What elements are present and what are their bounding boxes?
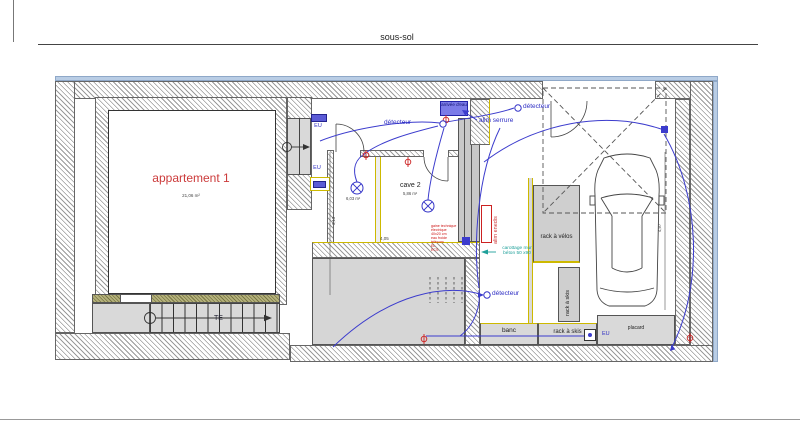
car [590, 154, 664, 306]
khaki-strip-gap [120, 294, 152, 303]
closet-label: placard [597, 326, 675, 331]
detector-label-1: détecteur [384, 120, 411, 127]
lock-supply-label: alim serrure [479, 118, 513, 125]
page-border-fragment [13, 0, 14, 42]
area-label-appartement1: 21,06 m² [108, 194, 274, 199]
core-drill-note: carottage mur béton 50 x90 [497, 246, 537, 256]
duct-note-line: ECS [431, 249, 456, 253]
room-label-appartement1: appartement 1 [108, 172, 274, 185]
water-inlet-label: arrivée d'eau [440, 103, 468, 108]
enedis-chase [481, 205, 492, 243]
bottom-rule [0, 419, 800, 420]
eu-label-1: EU [303, 124, 333, 130]
detector-label-2: détecteur [523, 104, 550, 111]
wall-bottom-left [55, 333, 290, 360]
eu-symbol-1 [311, 114, 327, 122]
wall-left [55, 81, 75, 333]
dim-corridor: 3,13 [332, 217, 336, 225]
lower-gray-room [312, 258, 465, 345]
detector-label-3: détecteur [492, 291, 519, 298]
carottage-arrow [481, 250, 496, 255]
page-title: sous-sol [337, 33, 457, 42]
dim-garage: 4,97 [658, 224, 662, 232]
apartment1-room [108, 110, 276, 294]
stair-te-landing [92, 303, 150, 333]
wall-right-outer [690, 81, 713, 362]
area-label-cave2: 5,86 m² [403, 192, 417, 196]
enedis-supply-label: alim enedis [494, 216, 500, 244]
ski-rack-v-label: rack à skis [566, 290, 572, 316]
wall-entry-lower [465, 258, 480, 345]
dim-caves-width: 4,05 [380, 237, 389, 242]
duct-note: gaine technique électrique 40x20 cm eau … [431, 225, 456, 253]
eu-symbol-2 [313, 181, 326, 188]
stair-landing-divider [299, 118, 300, 175]
wall-bottom-right [290, 345, 713, 362]
shaft-line-1 [464, 118, 465, 242]
wall-caves-top-b [360, 150, 424, 157]
wall-right-inner-garage [675, 99, 690, 345]
insulation-strip-right [713, 81, 718, 362]
bike-rack-label: rack à vélos [533, 234, 580, 240]
floor-plan-page: sous-sol appartement 1 21,06 m² [0, 0, 800, 431]
stair-te-label: TE [214, 315, 223, 322]
ceiling-light-icon [351, 182, 434, 212]
bike-rack [533, 185, 580, 263]
eu-label-2: EU [302, 166, 332, 172]
room-label-cave2: cave 2 [400, 182, 421, 189]
ski-rack-h-label: rack à skis [538, 329, 597, 335]
title-rule [38, 44, 758, 45]
eu-label-3: EU [602, 332, 610, 338]
bench-label: banc [480, 328, 538, 335]
area-label-cave1: 6,03 m² [346, 197, 360, 201]
